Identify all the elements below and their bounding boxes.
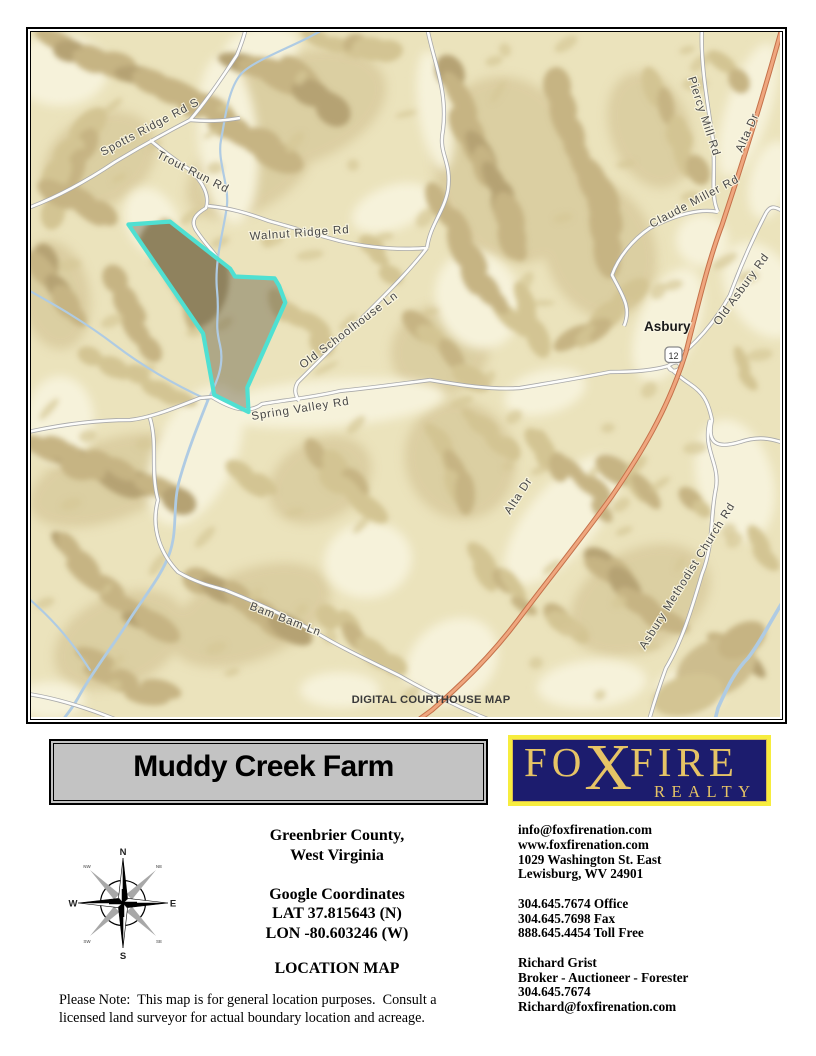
svg-text:NW: NW <box>83 864 91 869</box>
svg-text:W: W <box>69 899 78 910</box>
svg-text:N: N <box>120 847 127 858</box>
svg-text:DIGITAL COURTHOUSE MAP: DIGITAL COURTHOUSE MAP <box>352 694 511 706</box>
svg-text:S: S <box>120 951 126 962</box>
svg-text:12: 12 <box>668 351 678 361</box>
svg-text:E: E <box>170 899 176 910</box>
svg-text:SE: SE <box>156 939 162 944</box>
svg-text:SW: SW <box>83 939 91 944</box>
svg-text:Asbury: Asbury <box>644 319 691 334</box>
svg-text:NE: NE <box>156 864 162 869</box>
